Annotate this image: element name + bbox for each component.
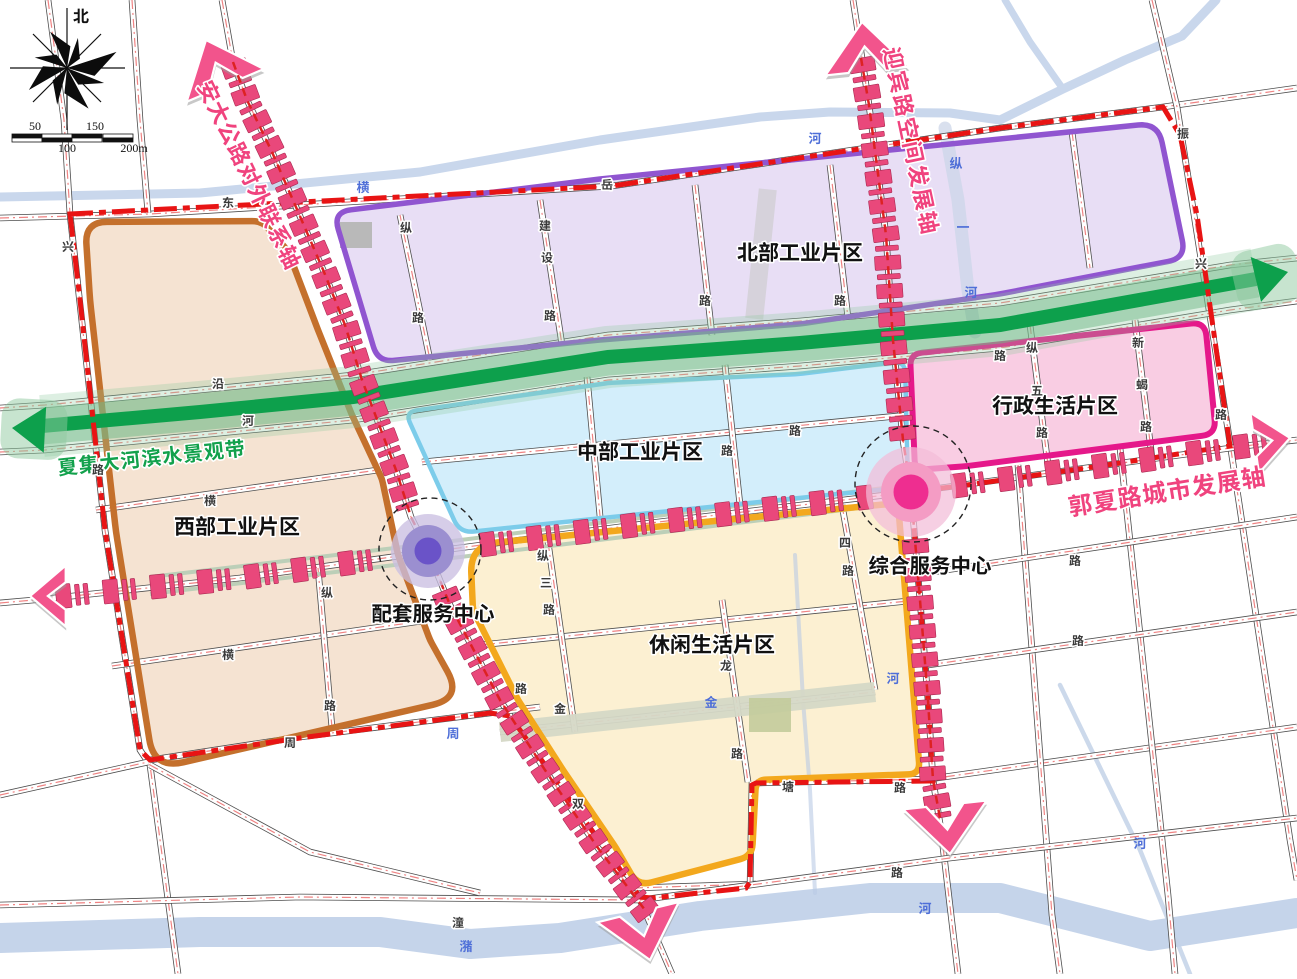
- svg-text:100: 100: [58, 141, 76, 155]
- svg-text:50: 50: [29, 119, 41, 133]
- svg-text:150: 150: [86, 119, 104, 133]
- svg-text:200m: 200m: [120, 141, 148, 155]
